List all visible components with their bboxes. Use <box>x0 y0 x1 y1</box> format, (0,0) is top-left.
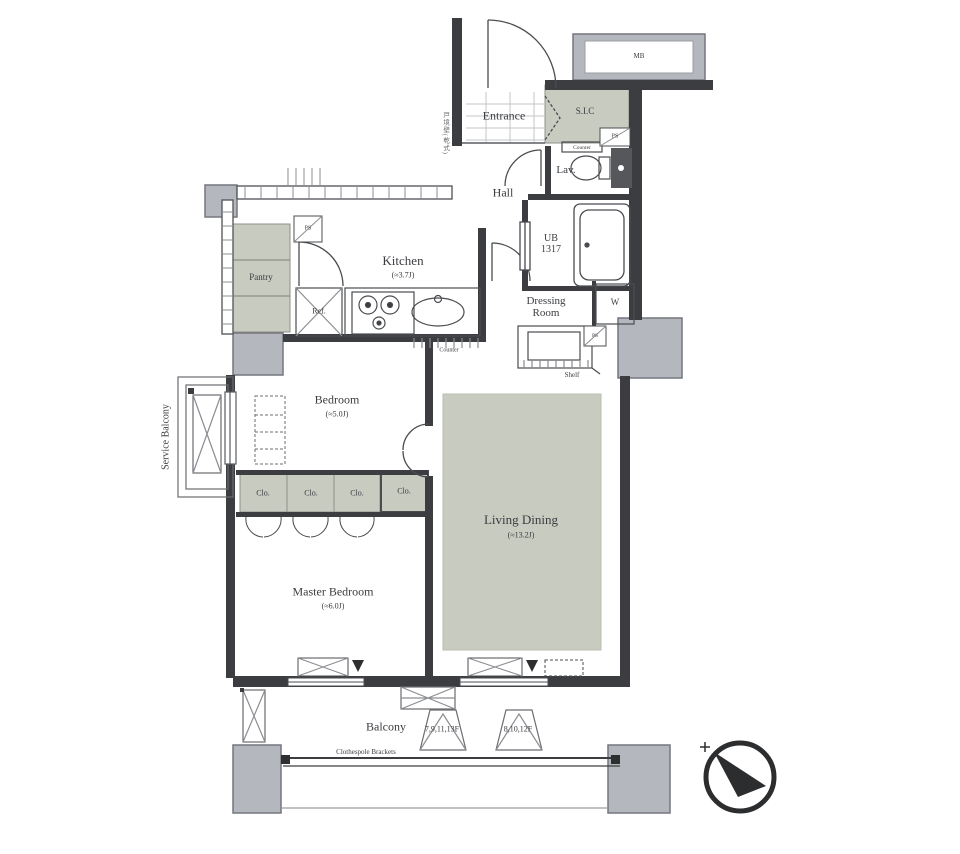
dressing-room-label: Dressing Room <box>526 295 565 319</box>
sic-label: S.I.C <box>576 107 595 117</box>
wall-note-label: 戸境壁(乾式) <box>441 111 448 155</box>
meter-box-label: MB <box>634 53 645 61</box>
closet-curtain-marks <box>246 517 374 537</box>
floor-plan: Entrance S.I.C MB PS Hall Counter Lav. U… <box>0 0 960 854</box>
living-dining-area-label: (≈13.2J) <box>508 532 535 541</box>
closet-label-3: Clo. <box>350 490 364 499</box>
bathtub-icon <box>520 204 630 286</box>
kitchen-area-label: (≈3.7J) <box>392 272 415 281</box>
master-bedroom-label: Master Bedroom <box>293 585 374 598</box>
shelf-label: Shelf <box>565 372 580 380</box>
ps-label-3: PS <box>305 226 312 233</box>
counter-label: Counter <box>439 348 458 355</box>
ps-label-1: PS <box>612 134 619 141</box>
lav-label: Lav. <box>556 164 575 176</box>
washer-label: W <box>611 298 620 308</box>
service-balcony-label: Service Balcony <box>161 404 172 470</box>
ref-label: Ref. <box>312 308 326 317</box>
hatch-dashed-box <box>255 396 285 464</box>
clothespole-label: Clothespole Brackets <box>336 749 396 757</box>
closet-label-1: Clo. <box>256 490 270 499</box>
balcony-graphics <box>240 687 620 808</box>
ub-label: UB 1317 <box>541 233 561 255</box>
hall-label: Hall <box>493 186 514 199</box>
master-bedroom-area-label: (≈6.0J) <box>322 603 345 612</box>
lav-counter-label: Counter <box>573 145 591 151</box>
living-dining-label: Living Dining <box>484 513 558 527</box>
closet-label-2: Clo. <box>304 490 318 499</box>
compass-icon <box>700 742 774 811</box>
kitchen-label: Kitchen <box>382 254 423 268</box>
bedroom-label: Bedroom <box>315 393 360 406</box>
ps-label-2: PS <box>592 333 598 339</box>
balcony-label: Balcony <box>366 720 406 733</box>
floors-b-label: 8,10,12F <box>504 726 532 735</box>
entrance-label: Entrance <box>483 109 526 122</box>
floor-plan-drawing <box>0 0 960 854</box>
bedroom-area-label: (≈5.0J) <box>326 411 349 420</box>
closet-label-4: Clo. <box>397 488 411 497</box>
pantry-label: Pantry <box>249 273 273 283</box>
floors-a-label: 7,9,11,13F <box>425 726 459 735</box>
